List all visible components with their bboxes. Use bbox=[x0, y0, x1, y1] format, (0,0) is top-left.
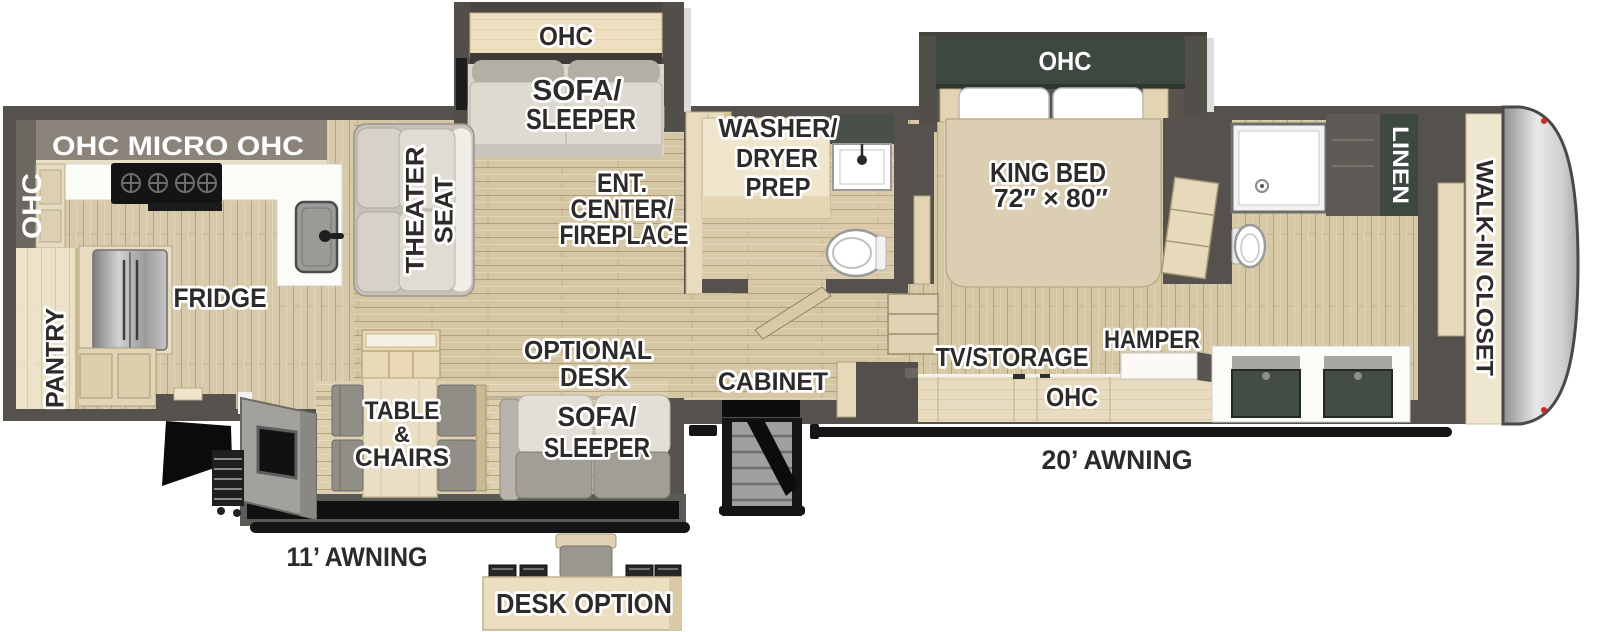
svg-text:SOFA/: SOFA/ bbox=[558, 401, 637, 432]
svg-text:SLEEPER: SLEEPER bbox=[544, 432, 650, 463]
svg-text:SEAT: SEAT bbox=[431, 177, 459, 244]
svg-text:CHAIRS: CHAIRS bbox=[355, 444, 449, 472]
svg-text:WALK-IN CLOSET: WALK-IN CLOSET bbox=[1471, 160, 1498, 376]
svg-text:PANTRY: PANTRY bbox=[42, 308, 70, 408]
svg-text:SOFA/: SOFA/ bbox=[533, 75, 622, 107]
svg-text:LINEN: LINEN bbox=[1388, 126, 1413, 204]
svg-text:20’ AWNING: 20’ AWNING bbox=[1042, 445, 1193, 475]
svg-text:OHC MICRO OHC: OHC MICRO OHC bbox=[52, 131, 304, 161]
svg-text:THEATER: THEATER bbox=[402, 147, 430, 274]
svg-text:DESK OPTION: DESK OPTION bbox=[496, 588, 672, 619]
svg-text:OPTIONAL: OPTIONAL bbox=[524, 335, 652, 365]
svg-text:OHC: OHC bbox=[539, 21, 593, 51]
svg-text:FRIDGE: FRIDGE bbox=[174, 283, 267, 313]
svg-text:WASHER/: WASHER/ bbox=[719, 113, 838, 143]
svg-text:PREP: PREP bbox=[746, 172, 811, 202]
svg-text:CABINET: CABINET bbox=[718, 368, 828, 396]
svg-text:72″ × 80″: 72″ × 80″ bbox=[994, 183, 1108, 213]
svg-text:TABLE: TABLE bbox=[365, 397, 440, 425]
svg-text:OHC: OHC bbox=[1046, 382, 1098, 412]
svg-text:TV/STORAGE: TV/STORAGE bbox=[936, 342, 1089, 372]
svg-text:HAMPER: HAMPER bbox=[1104, 326, 1200, 354]
svg-text:OHC: OHC bbox=[1039, 46, 1092, 76]
svg-text:11’ AWNING: 11’ AWNING bbox=[287, 542, 428, 572]
svg-text:FIREPLACE: FIREPLACE bbox=[560, 220, 689, 250]
svg-text:DESK: DESK bbox=[560, 362, 628, 392]
svg-text:OHC: OHC bbox=[17, 173, 47, 239]
svg-text:DRYER: DRYER bbox=[736, 143, 818, 173]
svg-text:SLEEPER: SLEEPER bbox=[526, 104, 636, 136]
